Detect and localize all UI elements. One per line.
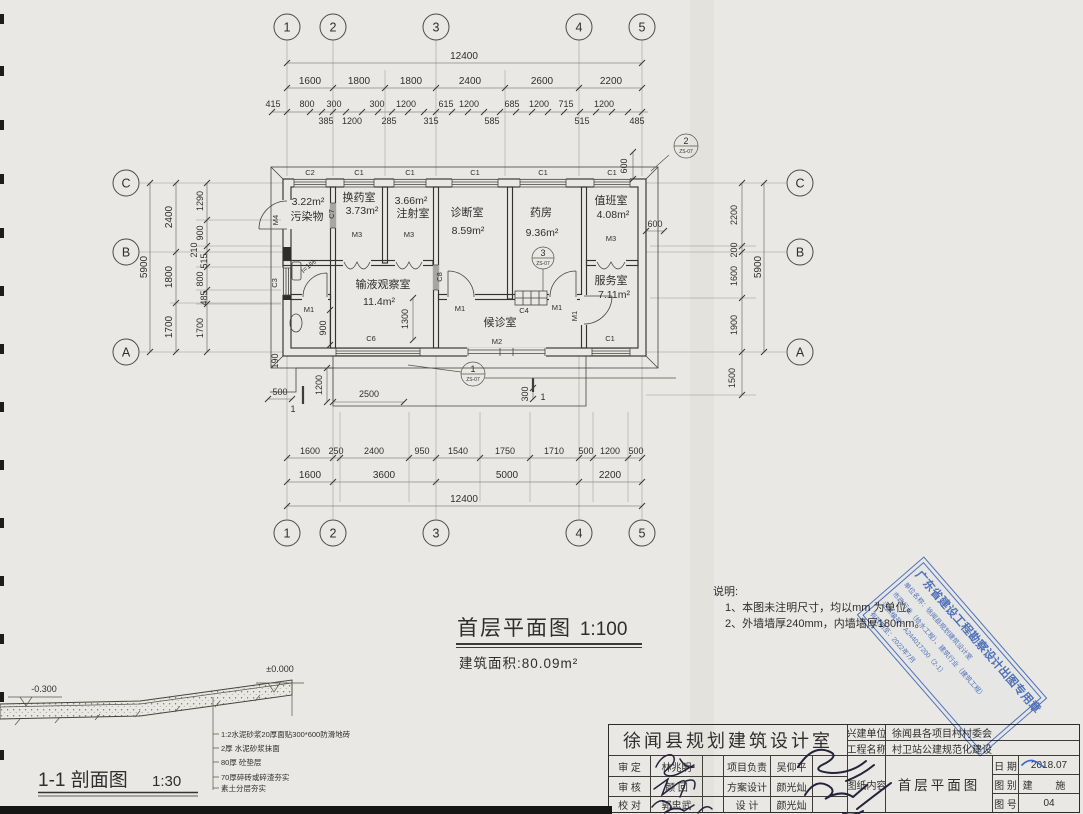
- svg-text:600: 600: [647, 219, 662, 229]
- sheet-number-label: 图 号: [993, 794, 1019, 812]
- walls: [283, 179, 646, 356]
- section-detail: -0.300 ±0.000 1:2水泥砂浆20厚面贴300*600防滑地砖 2厚…: [0, 664, 351, 796]
- svg-text:485: 485: [629, 116, 644, 126]
- svg-text:250: 250: [328, 446, 343, 456]
- svg-text:3.66m²: 3.66m²: [395, 195, 428, 207]
- svg-text:3: 3: [540, 248, 545, 258]
- svg-text:615: 615: [438, 99, 453, 109]
- svg-text:3.73m²: 3.73m²: [346, 205, 379, 217]
- svg-text:200: 200: [729, 242, 739, 257]
- scan-artifact: [0, 286, 4, 296]
- svg-text:污染物: 污染物: [291, 209, 324, 223]
- scan-artifact: [0, 66, 4, 76]
- svg-text:C8: C8: [435, 272, 444, 282]
- svg-text:2200: 2200: [729, 205, 739, 225]
- svg-text:800: 800: [299, 99, 314, 109]
- svg-text:B: B: [796, 246, 804, 260]
- scan-artifact: [0, 460, 4, 470]
- svg-text:8.59m²: 8.59m²: [452, 225, 485, 237]
- approver-label: 审 定: [609, 756, 651, 777]
- title-underline: [456, 643, 642, 645]
- svg-text:1:2水泥砂浆20厚面贴300*600防滑地砖: 1:2水泥砂浆20厚面贴300*600防滑地砖: [221, 729, 351, 739]
- project-lead-label: 项目负责: [724, 756, 771, 777]
- building-area-note: 建筑面积:80.09m²: [459, 652, 578, 672]
- date-label: 日 期: [993, 756, 1019, 775]
- section-cut-marks: [303, 378, 533, 404]
- svg-text:300: 300: [369, 99, 384, 109]
- svg-text:1600: 1600: [299, 76, 322, 87]
- svg-text:385: 385: [318, 116, 333, 126]
- scan-artifact: [0, 692, 4, 702]
- svg-text:2400: 2400: [459, 76, 482, 87]
- date-value: 2018.07: [1019, 756, 1079, 775]
- svg-text:4: 4: [576, 21, 583, 35]
- opening-tags: C2 C1 C1 C1 C1 C1 M3 M3 M3 M1 M1 M1 M1 M…: [270, 168, 617, 346]
- client-label: 兴建单位: [848, 725, 886, 741]
- windows: [283, 179, 631, 357]
- scheme-design-label: 方案设计: [724, 777, 771, 797]
- plan-title-text: 首层平面图: [457, 617, 572, 640]
- scan-edge-bar: [0, 806, 612, 814]
- designer-signature-cell: [813, 797, 848, 812]
- svg-text:11.4m²: 11.4m²: [363, 296, 395, 308]
- svg-text:1540: 1540: [448, 446, 468, 456]
- svg-text:C1: C1: [354, 168, 364, 177]
- witness-lines: [170, 70, 756, 502]
- svg-text:ZS-07: ZS-07: [679, 149, 693, 155]
- detail-callouts: 1 ZS-07 2 ZS-07 3 ZS-07 1 1: [290, 134, 698, 414]
- svg-text:1500: 1500: [727, 368, 737, 388]
- svg-text:2厚 水泥砂浆抹面: 2厚 水泥砂浆抹面: [221, 743, 280, 753]
- svg-text:1290: 1290: [195, 191, 205, 211]
- svg-text:M3: M3: [404, 230, 414, 239]
- svg-text:685: 685: [504, 99, 519, 109]
- svg-text:585: 585: [484, 116, 499, 126]
- svg-text:2500: 2500: [359, 389, 379, 399]
- title-underline-2: [456, 647, 642, 648]
- svg-text:M1: M1: [455, 304, 465, 313]
- svg-text:600: 600: [619, 158, 629, 173]
- svg-text:1200: 1200: [529, 99, 549, 109]
- proofreader-label: 校 对: [609, 797, 651, 812]
- reviewer-signature-cell: [703, 777, 724, 797]
- svg-text:1: 1: [540, 392, 545, 402]
- svg-text:1600: 1600: [300, 446, 320, 456]
- approver-name: 林兆明: [651, 756, 703, 777]
- svg-text:1900: 1900: [729, 315, 739, 335]
- svg-text:1200: 1200: [459, 99, 479, 109]
- svg-text:ZS-07: ZS-07: [536, 261, 550, 267]
- svg-text:1600: 1600: [729, 266, 739, 286]
- floor-plan-drawing: 1 2 3 4 5 1 2 3 4 5 C B A C B A: [0, 0, 1083, 814]
- svg-text:C: C: [121, 177, 130, 191]
- svg-text:500: 500: [628, 446, 643, 456]
- svg-text:C1: C1: [470, 168, 480, 177]
- svg-text:515: 515: [199, 253, 209, 268]
- svg-text:5900: 5900: [139, 255, 150, 278]
- svg-text:M1: M1: [552, 303, 562, 312]
- svg-text:5: 5: [639, 21, 646, 35]
- svg-text:3600: 3600: [373, 470, 396, 481]
- scheme-signature-cell: [813, 777, 848, 797]
- svg-text:5900: 5900: [753, 255, 764, 278]
- approver-signature-cell: [703, 756, 724, 777]
- svg-text:M3: M3: [606, 234, 616, 243]
- svg-text:C6: C6: [366, 334, 376, 343]
- plan-title-scale: 1:100: [580, 619, 628, 640]
- svg-text:1800: 1800: [348, 76, 371, 87]
- svg-text:C3: C3: [270, 278, 279, 288]
- design-office-name: 徐闻县规划建筑设计室: [609, 725, 848, 756]
- svg-text:M1: M1: [304, 305, 314, 314]
- svg-text:2400: 2400: [364, 446, 384, 456]
- sheet-content-value: 首层平面图: [886, 756, 993, 812]
- proofreader-signature-cell: [703, 797, 724, 812]
- section-title: 1-1 剖面图: [38, 769, 128, 791]
- svg-text:i=1%: i=1%: [299, 257, 318, 275]
- svg-text:A: A: [122, 346, 131, 360]
- section-scale: 1:30: [152, 773, 181, 790]
- svg-text:C7: C7: [327, 209, 336, 219]
- svg-text:1: 1: [284, 21, 291, 35]
- svg-text:C2: C2: [305, 168, 315, 177]
- svg-text:715: 715: [558, 99, 573, 109]
- svg-text:C1: C1: [538, 168, 548, 177]
- project-lead-name: 吴仰平: [771, 756, 813, 777]
- drawing-sheet: 1 2 3 4 5 1 2 3 4 5 C B A C B A: [0, 0, 1083, 814]
- svg-text:285: 285: [381, 116, 396, 126]
- dim-text-bottom: 1600 250 2400 950 1540 1750 1710 500 120…: [299, 446, 644, 505]
- svg-text:70厚碎砖或碎渣夯实: 70厚碎砖或碎渣夯实: [221, 772, 290, 782]
- svg-text:800: 800: [195, 271, 205, 286]
- svg-text:210: 210: [189, 242, 199, 257]
- grid-bubbles: [113, 14, 813, 546]
- svg-text:1700: 1700: [164, 315, 175, 338]
- svg-text:1300: 1300: [400, 309, 410, 329]
- svg-text:1: 1: [284, 527, 291, 541]
- sheet-content-label: 图纸内容: [848, 756, 886, 812]
- svg-text:415: 415: [265, 99, 280, 109]
- scheme-design-name: 颜光灿: [771, 777, 813, 797]
- svg-text:M1: M1: [570, 311, 579, 321]
- sheet-type-label: 图 别: [993, 775, 1019, 794]
- svg-text:1700: 1700: [195, 318, 205, 338]
- svg-text:注射室: 注射室: [397, 206, 430, 220]
- svg-text:80厚 砼垫层: 80厚 砼垫层: [221, 757, 262, 767]
- scan-artifact: [0, 344, 4, 354]
- svg-text:1: 1: [290, 404, 295, 414]
- sheet-number-value: 04: [1019, 794, 1079, 812]
- svg-text:1200: 1200: [342, 116, 362, 126]
- svg-text:3: 3: [433, 527, 440, 541]
- svg-text:1200: 1200: [594, 99, 614, 109]
- svg-text:2: 2: [683, 136, 688, 146]
- scan-artifact: [0, 402, 4, 412]
- project-lead-signature-cell: [813, 756, 848, 777]
- svg-text:4.08m²: 4.08m²: [597, 209, 630, 221]
- sheet-type-value: 建 施: [1019, 775, 1079, 794]
- svg-text:1750: 1750: [495, 446, 515, 456]
- proofreader-name: 郭忠武: [651, 797, 703, 812]
- svg-text:ZS-07: ZS-07: [466, 377, 480, 383]
- svg-text:2: 2: [330, 527, 337, 541]
- svg-text:素土分层夯实: 素土分层夯实: [221, 783, 266, 793]
- svg-text:950: 950: [414, 446, 429, 456]
- scan-artifact: [0, 14, 4, 24]
- svg-text:7.11m²: 7.11m²: [598, 289, 630, 301]
- svg-text:C: C: [795, 177, 804, 191]
- svg-text:服务室: 服务室: [595, 273, 628, 287]
- designer-label: 设 计: [724, 797, 771, 812]
- svg-text:2: 2: [330, 21, 337, 35]
- svg-text:300: 300: [520, 386, 530, 401]
- svg-text:候诊室: 候诊室: [484, 315, 517, 329]
- svg-text:315: 315: [423, 116, 438, 126]
- svg-text:C1: C1: [405, 168, 415, 177]
- dim-text-top: 12400 1600 1800 1800 2400 2600 2200 415 …: [265, 51, 644, 126]
- svg-text:1200: 1200: [396, 99, 416, 109]
- scan-artifact: [0, 174, 4, 184]
- svg-text:515: 515: [574, 116, 589, 126]
- scan-artifact: [0, 576, 4, 586]
- svg-text:500: 500: [578, 446, 593, 456]
- svg-text:±0.000: ±0.000: [266, 664, 293, 674]
- svg-text:诊断室: 诊断室: [451, 205, 484, 219]
- svg-text:A: A: [796, 346, 805, 360]
- svg-text:1710: 1710: [544, 446, 564, 456]
- svg-text:485: 485: [199, 290, 209, 305]
- svg-text:药房: 药房: [530, 206, 552, 219]
- svg-text:900: 900: [195, 225, 205, 240]
- svg-text:1200: 1200: [314, 375, 324, 395]
- svg-text:5000: 5000: [496, 470, 519, 481]
- project-label: 工程名称: [848, 741, 886, 756]
- svg-text:输液观察室: 输液观察室: [356, 277, 411, 291]
- svg-text:12400: 12400: [450, 494, 478, 505]
- svg-text:B: B: [122, 246, 130, 260]
- svg-text:3.22m²: 3.22m²: [292, 196, 325, 208]
- svg-text:1200: 1200: [600, 446, 620, 456]
- svg-text:300: 300: [326, 99, 341, 109]
- svg-text:值班室: 值班室: [595, 193, 628, 207]
- svg-text:2400: 2400: [164, 205, 175, 228]
- reviewer-label: 审 核: [609, 777, 651, 797]
- svg-text:900: 900: [318, 320, 328, 335]
- scan-artifact: [0, 120, 4, 130]
- designer-name: 颜光灿: [771, 797, 813, 812]
- svg-text:4: 4: [576, 527, 583, 541]
- svg-text:5: 5: [639, 527, 646, 541]
- svg-text:C1: C1: [607, 168, 617, 177]
- dimension-ticks: [147, 60, 767, 509]
- svg-text:1800: 1800: [400, 76, 423, 87]
- svg-text:2200: 2200: [599, 470, 622, 481]
- reviewer-name: 颜 回: [651, 777, 703, 797]
- scan-artifact: [0, 634, 4, 644]
- title-block: 徐闻县规划建筑设计室 兴建单位 徐闻县各项目村村委会 工程名称 村卫站公建规范化…: [608, 724, 1080, 813]
- scan-artifact: [0, 750, 4, 760]
- scan-artifact: [0, 518, 4, 528]
- svg-text:2600: 2600: [531, 76, 554, 87]
- svg-text:M3: M3: [352, 230, 362, 239]
- dimension-lines: [150, 63, 764, 506]
- svg-text:9.36m²: 9.36m²: [526, 227, 559, 239]
- svg-text:12400: 12400: [450, 51, 478, 62]
- svg-text:换药室: 换药室: [343, 190, 376, 204]
- svg-text:M4: M4: [271, 215, 280, 225]
- svg-text:3: 3: [433, 21, 440, 35]
- svg-text:1: 1: [470, 364, 475, 374]
- svg-text:-0.300: -0.300: [31, 684, 57, 694]
- plan-title: 首层平面图 1:100: [457, 612, 627, 642]
- svg-text:2200: 2200: [600, 76, 623, 87]
- svg-text:C1: C1: [605, 334, 615, 343]
- scan-artifact: [0, 228, 4, 238]
- svg-text:1600: 1600: [299, 470, 322, 481]
- svg-text:M2: M2: [492, 337, 502, 346]
- svg-text:C4: C4: [519, 306, 529, 315]
- svg-text:1800: 1800: [164, 265, 175, 288]
